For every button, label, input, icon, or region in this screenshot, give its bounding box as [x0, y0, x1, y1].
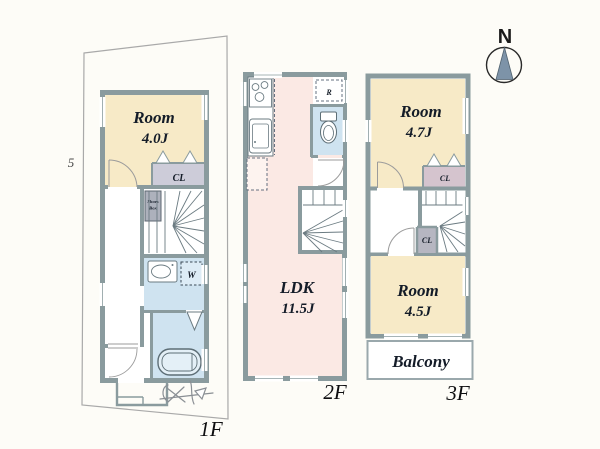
floor-label-1f: 1F [199, 417, 223, 441]
closet-north-label: CL [440, 174, 450, 183]
hall-2f [313, 158, 343, 186]
floor-2f: R [241, 72, 349, 404]
vanity-sink-icon [148, 261, 177, 282]
shoes-box-label-2: Box [148, 206, 157, 211]
closet-1f-label: CL [173, 173, 186, 184]
room-4-7j-floor-ext [371, 165, 423, 188]
floor-label-3f: 3F [445, 381, 470, 405]
washer-label: W [187, 271, 196, 281]
stove-icon [250, 79, 272, 107]
closet-mid-label: CL [422, 236, 432, 245]
room-north-size: 4.7J [405, 125, 433, 141]
room-south-size: 4.5J [404, 304, 432, 320]
floor-plan-page: 5 Shoes Box [0, 0, 600, 449]
margin-text-fragment: 5 [68, 155, 75, 170]
floor-label-2f: 2F [323, 380, 347, 404]
ldk-size: 11.5J [282, 301, 315, 317]
porch-doorway-gap [118, 378, 144, 384]
room-1f-size: 4.0J [141, 131, 169, 147]
floor-1f: Shoes Box W [100, 93, 223, 442]
room-4-7j-floor [371, 79, 465, 165]
ldk-name: LDK [279, 278, 316, 297]
compass-needle-icon [496, 48, 513, 80]
room-south-name: Room [396, 281, 439, 300]
balcony-label: Balcony [391, 352, 450, 371]
compass-north-label: N [498, 26, 512, 48]
compass: N [487, 26, 522, 83]
sink-icon [250, 119, 272, 153]
room-north-name: Room [399, 102, 442, 121]
fridge-label: R [325, 88, 332, 97]
staircase-2f-floor [300, 190, 343, 252]
entrance-porch [117, 383, 167, 405]
bathtub-icon [158, 349, 201, 375]
cupboard-space-outline [247, 158, 267, 190]
floor-3f: Balcony Room 4.7J CL CL Room 4.5J 3F [366, 76, 473, 405]
toilet-icon [321, 112, 337, 143]
room-1f-name: Room [132, 108, 175, 127]
floor-plan-canvas: 5 Shoes Box [0, 0, 600, 449]
